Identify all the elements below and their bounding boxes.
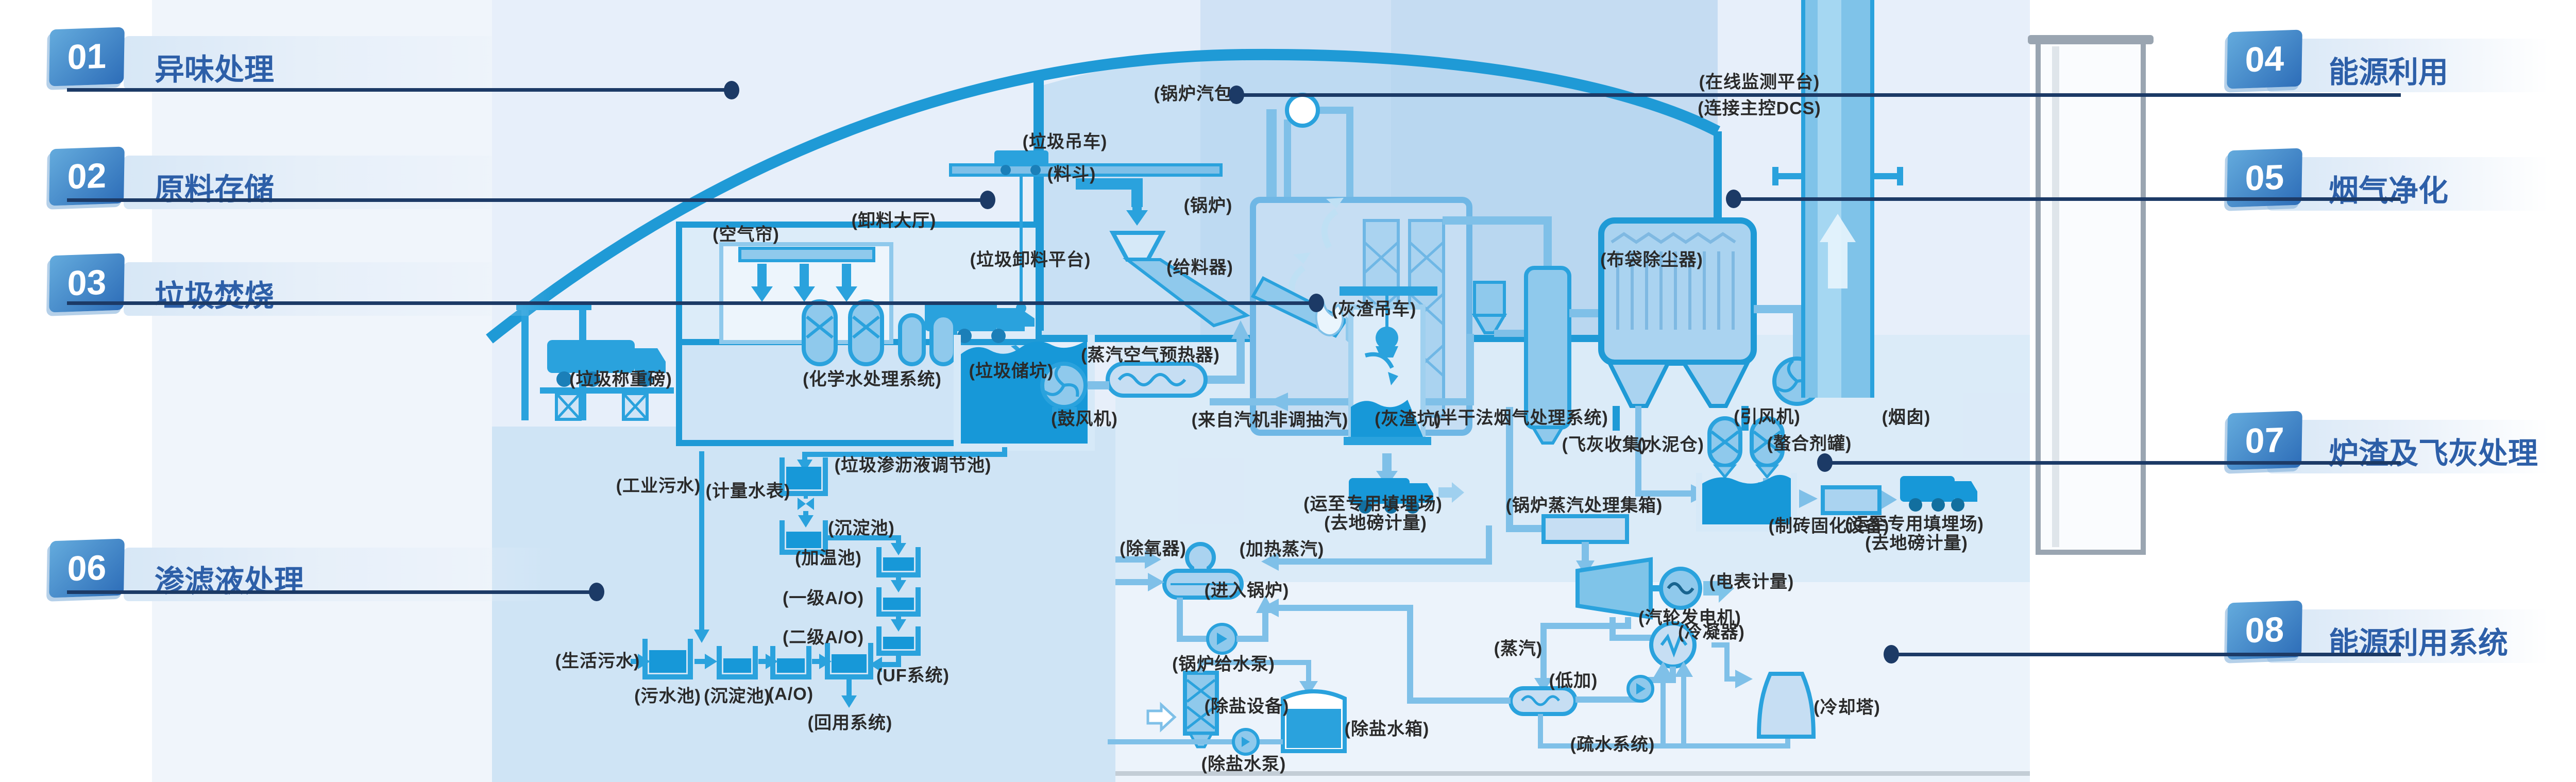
component-label: (冷凝器): [1678, 618, 1745, 643]
component-label: (灰渣坑): [1375, 405, 1442, 430]
component-label: (电表计量): [1709, 568, 1794, 593]
component-label: (垃圾储坑): [969, 357, 1054, 382]
leader-line-01: [67, 88, 728, 92]
section-title-03: 垃圾焚烧: [155, 271, 274, 315]
component-label: (锅炉给水泵): [1172, 650, 1275, 675]
component-label: (连接主控DCS): [1698, 94, 1821, 120]
leader-dot-01: [724, 81, 739, 99]
component-label: (锅炉蒸汽处理集箱): [1506, 491, 1663, 517]
component-label: (化学水处理系统): [803, 365, 942, 390]
component-label: (垃圾称重磅): [569, 365, 672, 390]
section-title-05: 烟气净化: [2329, 166, 2448, 210]
leader-line-04: [1236, 93, 2401, 97]
component-label: (加温池): [795, 544, 862, 569]
leader-dot-04: [1229, 86, 1244, 104]
component-label: (来自汽机非调抽汽): [1192, 406, 1349, 431]
leader-line-05: [1734, 197, 2401, 201]
component-label: (鼓风机): [1051, 405, 1118, 430]
component-label: (加热蒸汽): [1240, 535, 1325, 560]
component-label: (蒸汽空气预热器): [1081, 341, 1220, 366]
component-label: (去地磅计量): [1865, 529, 1968, 554]
component-label: (螯合剂罐): [1767, 430, 1852, 455]
component-label: (冷却塔): [1814, 693, 1880, 719]
waste-to-energy-process-infographic: { "sections": [ {"num":"01","title":"异味处…: [0, 0, 2576, 782]
leader-dot-02: [980, 191, 995, 209]
component-label: (二级A/O): [783, 623, 864, 649]
component-label: (A/O): [768, 685, 814, 705]
component-label: (生活污水): [555, 647, 640, 672]
leader-dot-05: [1726, 190, 1741, 208]
component-label: (给料器): [1166, 253, 1233, 279]
component-label: (UF系统): [876, 661, 950, 687]
component-label: (工业污水): [616, 472, 701, 497]
component-label: (半干法烟气处理系统): [1433, 404, 1608, 429]
section-badge-08: 08: [2227, 600, 2302, 659]
component-label: (一级A/O): [783, 584, 864, 609]
component-label: (计量水表): [706, 477, 791, 502]
section-badge-01: 01: [49, 27, 125, 86]
component-label: (锅炉): [1184, 192, 1233, 217]
component-label: (灰渣吊车): [1332, 295, 1417, 320]
component-label: (垃圾卸料平台): [970, 246, 1091, 271]
component-label: (低加): [1549, 667, 1598, 692]
component-label: (烟囱): [1882, 403, 1931, 429]
component-label: (布袋除尘器): [1600, 246, 1703, 271]
section-badge-06: 06: [49, 538, 125, 598]
component-label: (垃圾渗沥液调节池): [835, 451, 992, 477]
component-label: (料斗): [1047, 160, 1096, 185]
component-label: (垃圾吊车): [1023, 128, 1108, 153]
component-label: (疏水系统): [1570, 730, 1655, 756]
component-label: (除盐水泵): [1201, 750, 1286, 775]
component-label: (水泥仓): [1637, 431, 1704, 456]
component-label: (在线监测平台): [1699, 68, 1820, 93]
leader-line-02: [67, 198, 984, 202]
section-badge-02: 02: [49, 146, 125, 206]
leader-line-08: [1891, 653, 2401, 656]
component-label: (回用系统): [808, 709, 893, 734]
component-label: (进入锅炉): [1205, 576, 1290, 602]
component-label: (去地磅计量): [1324, 509, 1427, 534]
section-badge-04: 04: [2227, 29, 2302, 89]
component-labels-layer: (空气帘)(卸料大厅)(垃圾吊车)(锅炉汽包)(料斗)(锅炉)(垃圾卸料平台)(…: [0, 0, 2576, 782]
component-label: (除盐水箱): [1345, 715, 1430, 740]
component-label: (锅炉汽包): [1154, 80, 1239, 105]
leader-dot-07: [1817, 453, 1833, 472]
section-title-07: 炉渣及飞灰处理: [2329, 429, 2538, 472]
leader-dot-06: [589, 583, 604, 601]
component-label: (污水池): [634, 682, 701, 707]
component-label: (卸料大厅): [852, 207, 937, 232]
leader-line-03: [67, 301, 1313, 305]
component-label: (空气帘): [713, 220, 779, 246]
section-title-01: 异味处理: [155, 45, 274, 89]
section-title-04: 能源利用: [2329, 48, 2448, 91]
leader-dot-03: [1309, 294, 1324, 312]
leader-line-07: [1825, 461, 2401, 465]
component-label: (沉淀池): [704, 682, 771, 707]
component-label: (除氧器): [1120, 535, 1187, 560]
component-label: (蒸汽): [1494, 635, 1543, 660]
component-label: (飞灰收集): [1562, 431, 1647, 456]
leader-dot-08: [1884, 645, 1899, 664]
component-label: (引风机): [1734, 403, 1801, 428]
component-label: (沉淀池): [828, 514, 895, 539]
leader-line-06: [67, 590, 592, 594]
component-label: (除盐设备): [1205, 692, 1290, 718]
